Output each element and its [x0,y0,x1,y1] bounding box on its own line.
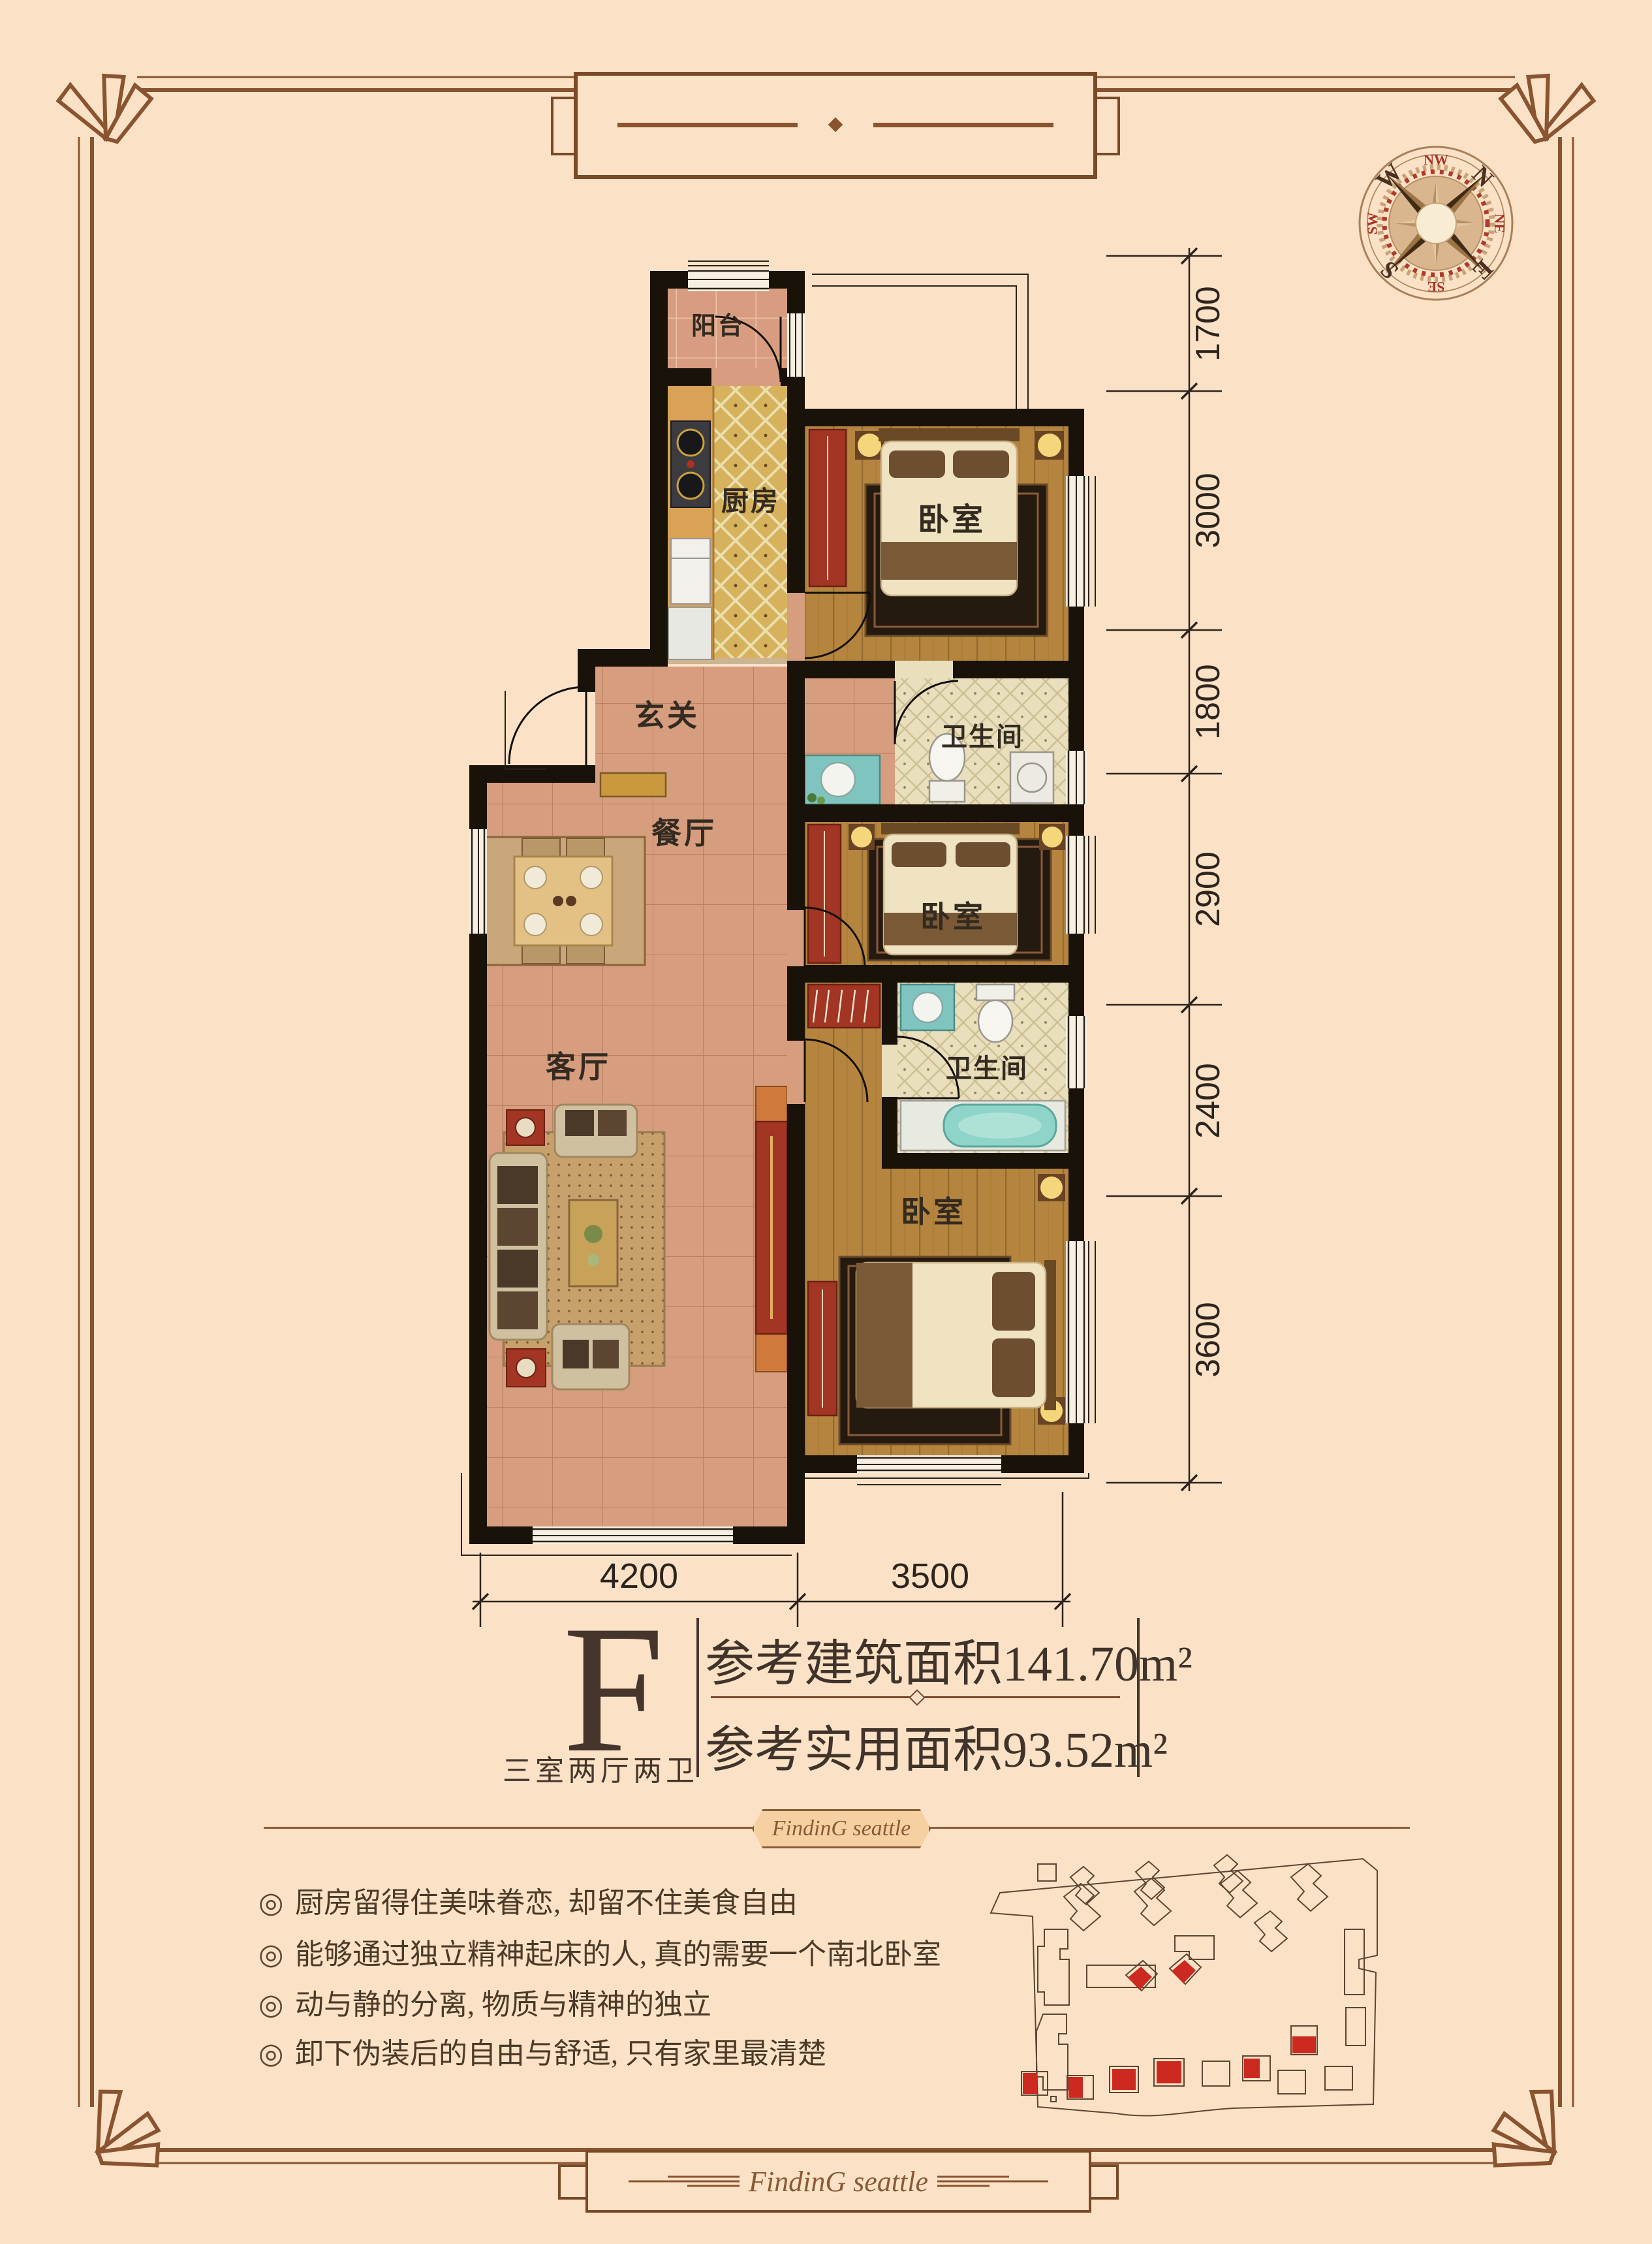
dim-1700: 1700 [1189,286,1227,362]
compass-ne: NE [1491,213,1508,234]
divider-vertical-left [696,1618,699,1777]
site-plan [959,1851,1390,2119]
corridor-wardrobe [808,985,880,1028]
label-kitchen: 厨房 [721,486,780,516]
divider-cartouche: FindinG seattle [752,1809,931,1848]
unit-layout: 三室两厅两卫 [495,1747,706,1789]
label-bath-low: 卫生间 [946,1054,1028,1083]
label-foyer: 玄关 [634,699,700,733]
label-bath-top: 卫生间 [941,723,1023,751]
dim-2400: 2400 [1189,1063,1227,1139]
compass-sw: SW [1364,212,1380,234]
dining-set [484,837,645,965]
kitchen-floor [713,386,787,661]
shoe-cabinet [600,773,666,797]
gross-area-text: 参考建筑面积141.70m² [705,1623,1126,1695]
flourish-right-icon [937,2175,1048,2188]
label-balcony: 阳台 [691,313,745,340]
selling-point-1: ◎厨房留得住美味眷恋, 却留不住美食自由 [258,1879,950,1916]
unit-letter: F [547,1607,680,1771]
label-bedroom-top: 卧室 [918,503,986,537]
label-living: 客厅 [546,1050,611,1084]
top-banner [552,74,1119,177]
floorplan-poster: N E S W NW NE SE SW [0,0,1652,2244]
dim-1800: 1800 [1189,664,1227,740]
label-bedroom-low: 卧室 [901,1195,966,1229]
brand-script-small: FindinG seattle [772,1816,911,1841]
selling-point-text: 能够通过独立精神起床的人, 真的需要一个南北卧室 [295,1938,941,1970]
bullseye-icon: ◎ [258,1886,295,1920]
floor-plan: 阳台 厨房 卧室 卫生间 玄关 餐厅 卧室 客厅 卫生间 卧室 [405,242,1253,1632]
dim-labels-right: 1700 3000 1800 2900 2400 3600 [1189,286,1227,1378]
compass-se: SE [1427,279,1445,295]
compass-nw: NW [1424,151,1448,168]
label-dining: 餐厅 [651,816,717,850]
bullseye-icon: ◎ [258,1988,295,2021]
selling-point-4: ◎卸下伪装后的自由与舒适, 只有家里最清楚 [258,2030,950,2066]
dim-3000: 3000 [1189,473,1227,548]
net-area-text: 参考实用面积93.52m² [705,1709,1126,1781]
dim-3500: 3500 [891,1557,969,1596]
selling-point-3: ◎动与静的分离, 物质与精神的独立 [258,1981,950,2017]
selling-point-text: 卸下伪装后的自由与舒适, 只有家里最清楚 [295,2038,826,2070]
selling-point-text: 动与静的分离, 物质与精神的独立 [295,1989,711,2021]
bullseye-icon: ◎ [258,2037,295,2070]
bullseye-icon: ◎ [258,1938,295,1971]
selling-point-2: ◎能够通过独立精神起床的人, 真的需要一个南北卧室 [258,1931,950,1967]
dim-3600: 3600 [1189,1302,1227,1378]
bottom-banner: FindinG seattle [585,2150,1091,2213]
label-bedroom-mid: 卧室 [920,900,986,934]
dim-2900: 2900 [1189,851,1227,927]
brand-script: FindinG seattle [749,2165,928,2198]
compass-icon: N E S W NW NE SE SW [1356,144,1516,303]
flourish-left-icon [629,2175,740,2188]
selling-point-text: 厨房留得住美味眷恋, 却留不住美食自由 [295,1887,798,1919]
